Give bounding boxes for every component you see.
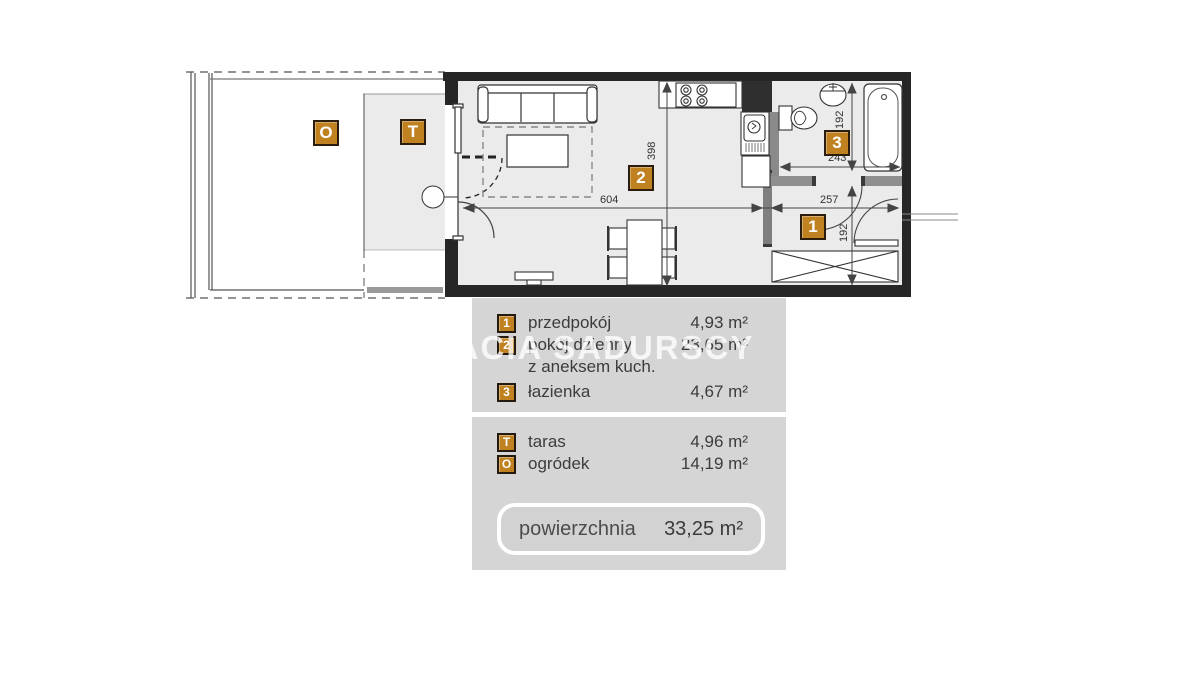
legend-row-garden: O ogródek 14,19 m² — [472, 453, 786, 475]
terrace-step — [367, 287, 443, 293]
dim-living-height: 398 — [646, 128, 658, 160]
coffee-table — [507, 135, 568, 167]
kitchen-shaft — [742, 81, 772, 112]
legend-outdoor-panel: T taras 4,96 m² O ogródek 14,19 m² powie… — [472, 417, 786, 570]
badge-bath: 3 — [824, 130, 850, 156]
dim-living-width: 604 — [600, 194, 618, 206]
kitchen-sink — [741, 112, 769, 155]
badge-garden: O — [313, 120, 339, 146]
total-area-value: 33,25 m² — [664, 518, 743, 541]
legend-badge-bath: 3 — [497, 383, 516, 402]
toilet — [779, 106, 817, 130]
legend-label: taras — [528, 432, 690, 452]
legend-row-terrace: T taras 4,96 m² — [472, 431, 786, 453]
dim-hall-width: 257 — [820, 194, 838, 206]
dim-hall-height: 192 — [838, 216, 850, 242]
wardrobe — [772, 251, 898, 282]
legend-area: 14,19 m² — [681, 454, 748, 474]
legend-badge-garden: O — [497, 455, 516, 474]
kitchen-counter — [659, 81, 742, 108]
badge-hall: 1 — [800, 214, 826, 240]
legend-badge-terrace: T — [497, 433, 516, 452]
fridge — [742, 156, 770, 187]
sofa — [478, 85, 597, 123]
sink-drainer — [746, 143, 764, 152]
legend-area: 4,96 m² — [690, 432, 748, 452]
badge-living: 2 — [628, 165, 654, 191]
badge-terrace: T — [400, 119, 426, 145]
legend-area: 4,67 m² — [690, 382, 748, 402]
total-area-box: powierzchnia 33,25 m² — [497, 503, 765, 555]
legend-label: łazienka — [528, 382, 690, 402]
agency-watermark: BRACIA SADURSCY — [403, 329, 754, 367]
terrace-table — [422, 186, 458, 208]
total-area-label: powierzchnia — [519, 518, 636, 541]
legend-label: ogródek — [528, 454, 681, 474]
legend-row-bath: 3 łazienka 4,67 m² — [472, 381, 786, 403]
floorplan-page: O T 2 3 1 398 604 257 243 192 192 1 prze… — [0, 0, 1183, 692]
dim-bath-height: 192 — [834, 103, 846, 129]
bathtub — [864, 84, 902, 171]
